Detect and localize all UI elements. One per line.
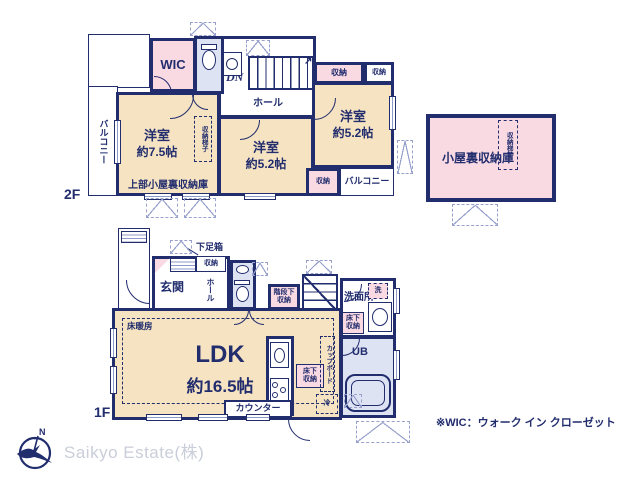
bedroom-mid-size: 約5.2帖	[246, 157, 287, 172]
eave-marker	[170, 240, 192, 254]
cupboard: カップボード	[320, 336, 335, 392]
storage-top-b-2f: 収納	[364, 62, 394, 84]
eave-marker	[184, 198, 216, 218]
refrigerator-label: 冷	[324, 400, 331, 408]
shoe-cabinet	[170, 258, 196, 272]
eave-marker	[356, 421, 410, 443]
burner-icon	[272, 392, 278, 398]
under-stair-storage-l2: 収納	[277, 297, 291, 305]
eave-marker	[252, 262, 268, 276]
window	[114, 120, 121, 164]
company-name: Saikyo Estate(株)	[64, 438, 204, 463]
basin-icon-1f	[236, 265, 249, 274]
storage-ladder-label-2f: 収納梯子	[200, 126, 207, 152]
window	[198, 414, 228, 421]
window	[389, 96, 396, 130]
shoebox-label: 下足箱	[196, 242, 223, 253]
floor-label-1f: 1F	[94, 404, 110, 420]
eave-marker	[146, 198, 178, 218]
attic-above-label: 上部小屋裏収納庫	[118, 180, 218, 193]
washer-label: 洗	[375, 287, 382, 295]
bedroom-right-2f: 洋室 約5.2帖	[312, 82, 394, 168]
counter-label: カウンター	[235, 403, 280, 414]
attic-storage-room: 小屋裏収納庫	[426, 114, 556, 202]
refrigerator: 冷	[316, 394, 338, 414]
window	[110, 328, 117, 358]
wic-note: ※WIC：ウォーク イン クローゼット	[436, 414, 616, 430]
compass-icon: N	[12, 426, 60, 474]
bedroom-right-name: 洋室	[340, 109, 366, 125]
kitchen-sink-bowl	[274, 348, 285, 363]
storage-1f-top: 収納	[196, 256, 226, 272]
entrance-label: 玄関	[160, 280, 184, 295]
hall-label-2f: ホール	[222, 98, 314, 111]
bedroom-left-size: 約7.5帖	[137, 145, 200, 160]
underfloor-bath-l2: 収納	[346, 323, 360, 331]
balcony-right-label: バルコニー	[345, 176, 390, 187]
window	[393, 288, 400, 314]
eave-marker	[246, 40, 270, 56]
hall-label-1f: ホール	[206, 278, 214, 302]
storage-ladder-attic: 収納梯子	[498, 120, 518, 170]
storage-ladder-label-attic: 収納梯子	[505, 132, 512, 158]
roof-void-box	[88, 34, 150, 88]
north-label: N	[39, 427, 46, 437]
stairs-arrow-2f: ↗	[304, 56, 312, 69]
wic-label: WIC	[160, 57, 185, 73]
window	[246, 414, 270, 421]
porch-steps	[121, 231, 147, 243]
window	[244, 193, 276, 200]
underfloor-storage-bath: 床下 収納	[342, 312, 364, 334]
under-stair-storage: 階段下 収納	[268, 284, 300, 310]
burner-icon	[280, 387, 286, 393]
eave-marker	[452, 204, 498, 226]
storage-top-a-2f: 収納	[314, 62, 364, 84]
floor-heating-label: 床暖房	[127, 321, 153, 332]
floorplan-canvas: バルコニー DN ↗ ホール WIC 洋室 約7.5帖 収納梯子 上部小屋裏収納…	[0, 0, 640, 480]
burner-icon	[272, 382, 278, 388]
toilet-tank-icon-1f	[234, 280, 250, 285]
stairs-up-1f	[302, 274, 338, 312]
balcony-left-label: バルコニー	[99, 119, 108, 164]
storage-top-a-label: 収納	[331, 68, 347, 78]
toilet-bowl-icon-2f	[202, 50, 216, 70]
underfloor-bath-l1: 床下	[346, 315, 360, 323]
storage-1f-label: 収納	[204, 260, 218, 268]
washer-space: 洗	[368, 283, 388, 299]
basin-icon-2f	[226, 58, 238, 70]
storage-bottom-2f: 収納	[306, 168, 340, 196]
eave-marker	[306, 260, 332, 274]
window	[110, 366, 117, 394]
under-stair-storage-l1: 階段下	[274, 289, 295, 297]
storage-ladder-2f: 収納梯子	[194, 116, 212, 162]
eave-marker	[190, 22, 216, 36]
washbasin-bowl	[372, 308, 388, 326]
balcony-right-2f: バルコニー	[340, 168, 394, 196]
eave-marker	[397, 140, 413, 174]
underfloor-kitchen-l1: 床下	[303, 368, 317, 376]
window	[393, 350, 400, 380]
storage-top-b-label: 収納	[372, 69, 386, 77]
bedroom-mid-name: 洋室	[253, 140, 279, 156]
floor-label-2f: 2F	[64, 186, 80, 202]
toilet-bowl-icon-1f	[236, 286, 249, 302]
bedroom-right-size: 約5.2帖	[333, 126, 374, 141]
cupboard-label: カップボード	[324, 345, 331, 384]
bedroom-mid-2f: 洋室 約5.2帖	[218, 116, 314, 196]
eave-marker	[344, 394, 362, 408]
bedroom-left-name: 洋室	[144, 128, 192, 144]
storage-bottom-label: 収納	[316, 178, 330, 186]
window	[146, 414, 182, 421]
underfloor-kitchen-l2: 収納	[303, 376, 317, 384]
